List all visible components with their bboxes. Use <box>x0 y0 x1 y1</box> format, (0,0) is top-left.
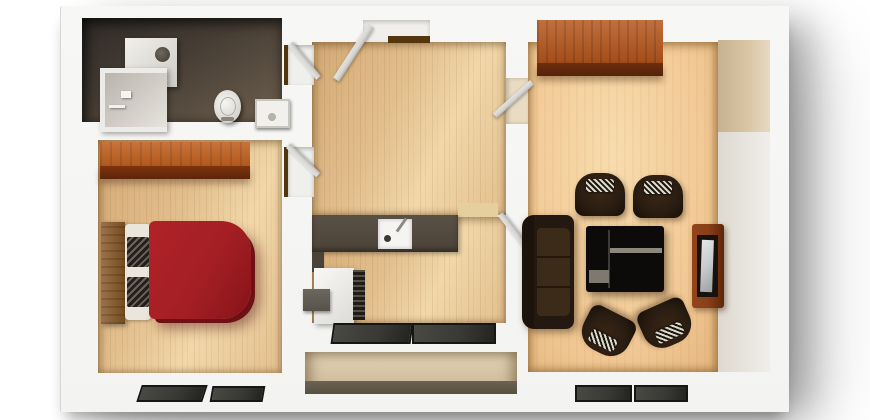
shower-cabin <box>100 68 167 132</box>
water-heater-vent <box>155 47 170 62</box>
toilet <box>214 90 241 123</box>
armchair-cushion <box>644 181 672 194</box>
tv-screen <box>700 240 714 292</box>
armchair-top-left <box>575 173 625 216</box>
tv <box>697 235 718 297</box>
towel-bar <box>109 105 125 108</box>
entrance-door-sill <box>388 36 430 43</box>
radiator-grate <box>353 270 365 320</box>
living-room-window-right <box>634 385 688 402</box>
kitchen-door-threshold <box>458 203 498 217</box>
folded-blanket <box>127 237 149 267</box>
sideboard <box>537 20 663 63</box>
coffee-table <box>586 226 664 292</box>
toilet-seat <box>220 97 236 116</box>
coffee-table-drawer <box>589 270 609 283</box>
folded-blanket <box>127 277 149 307</box>
armchair-top-right <box>633 175 683 218</box>
armchair-cushion <box>586 179 614 192</box>
sofa <box>522 215 574 329</box>
wash-basin <box>255 99 290 128</box>
wardrobe <box>100 142 250 166</box>
sink-faucet <box>396 218 408 233</box>
soap-dish <box>121 91 131 98</box>
balcony-recess-floor <box>305 381 517 394</box>
sofa-seat-cushions <box>537 228 570 316</box>
kitchen-window-left <box>331 323 414 344</box>
sink-drain <box>384 235 391 242</box>
toilet-cistern <box>221 117 234 121</box>
bed-pillows <box>125 224 151 320</box>
wardrobe-front-face <box>100 166 250 179</box>
coffee-table-shelf <box>610 248 662 253</box>
tv-cabinet <box>692 224 724 308</box>
bedroom-window-right <box>210 386 266 402</box>
wash-basin-bowl <box>268 113 276 121</box>
kitchen-sink <box>378 219 412 249</box>
bed-headboard <box>101 222 125 324</box>
sideboard-front-face <box>537 63 663 76</box>
right-wall-face <box>718 132 770 372</box>
bedroom-window-left <box>136 385 208 402</box>
living-room-beige-wall <box>718 40 770 132</box>
armchair-cushion <box>587 328 618 352</box>
kitchen-window-right <box>412 323 496 344</box>
balcony-recess <box>305 352 517 394</box>
armchair-cushion <box>654 321 685 344</box>
floor-plan-render <box>0 0 870 420</box>
double-bed <box>149 221 251 319</box>
kitchen-side-unit <box>303 289 330 311</box>
living-room-window-left <box>575 385 632 402</box>
